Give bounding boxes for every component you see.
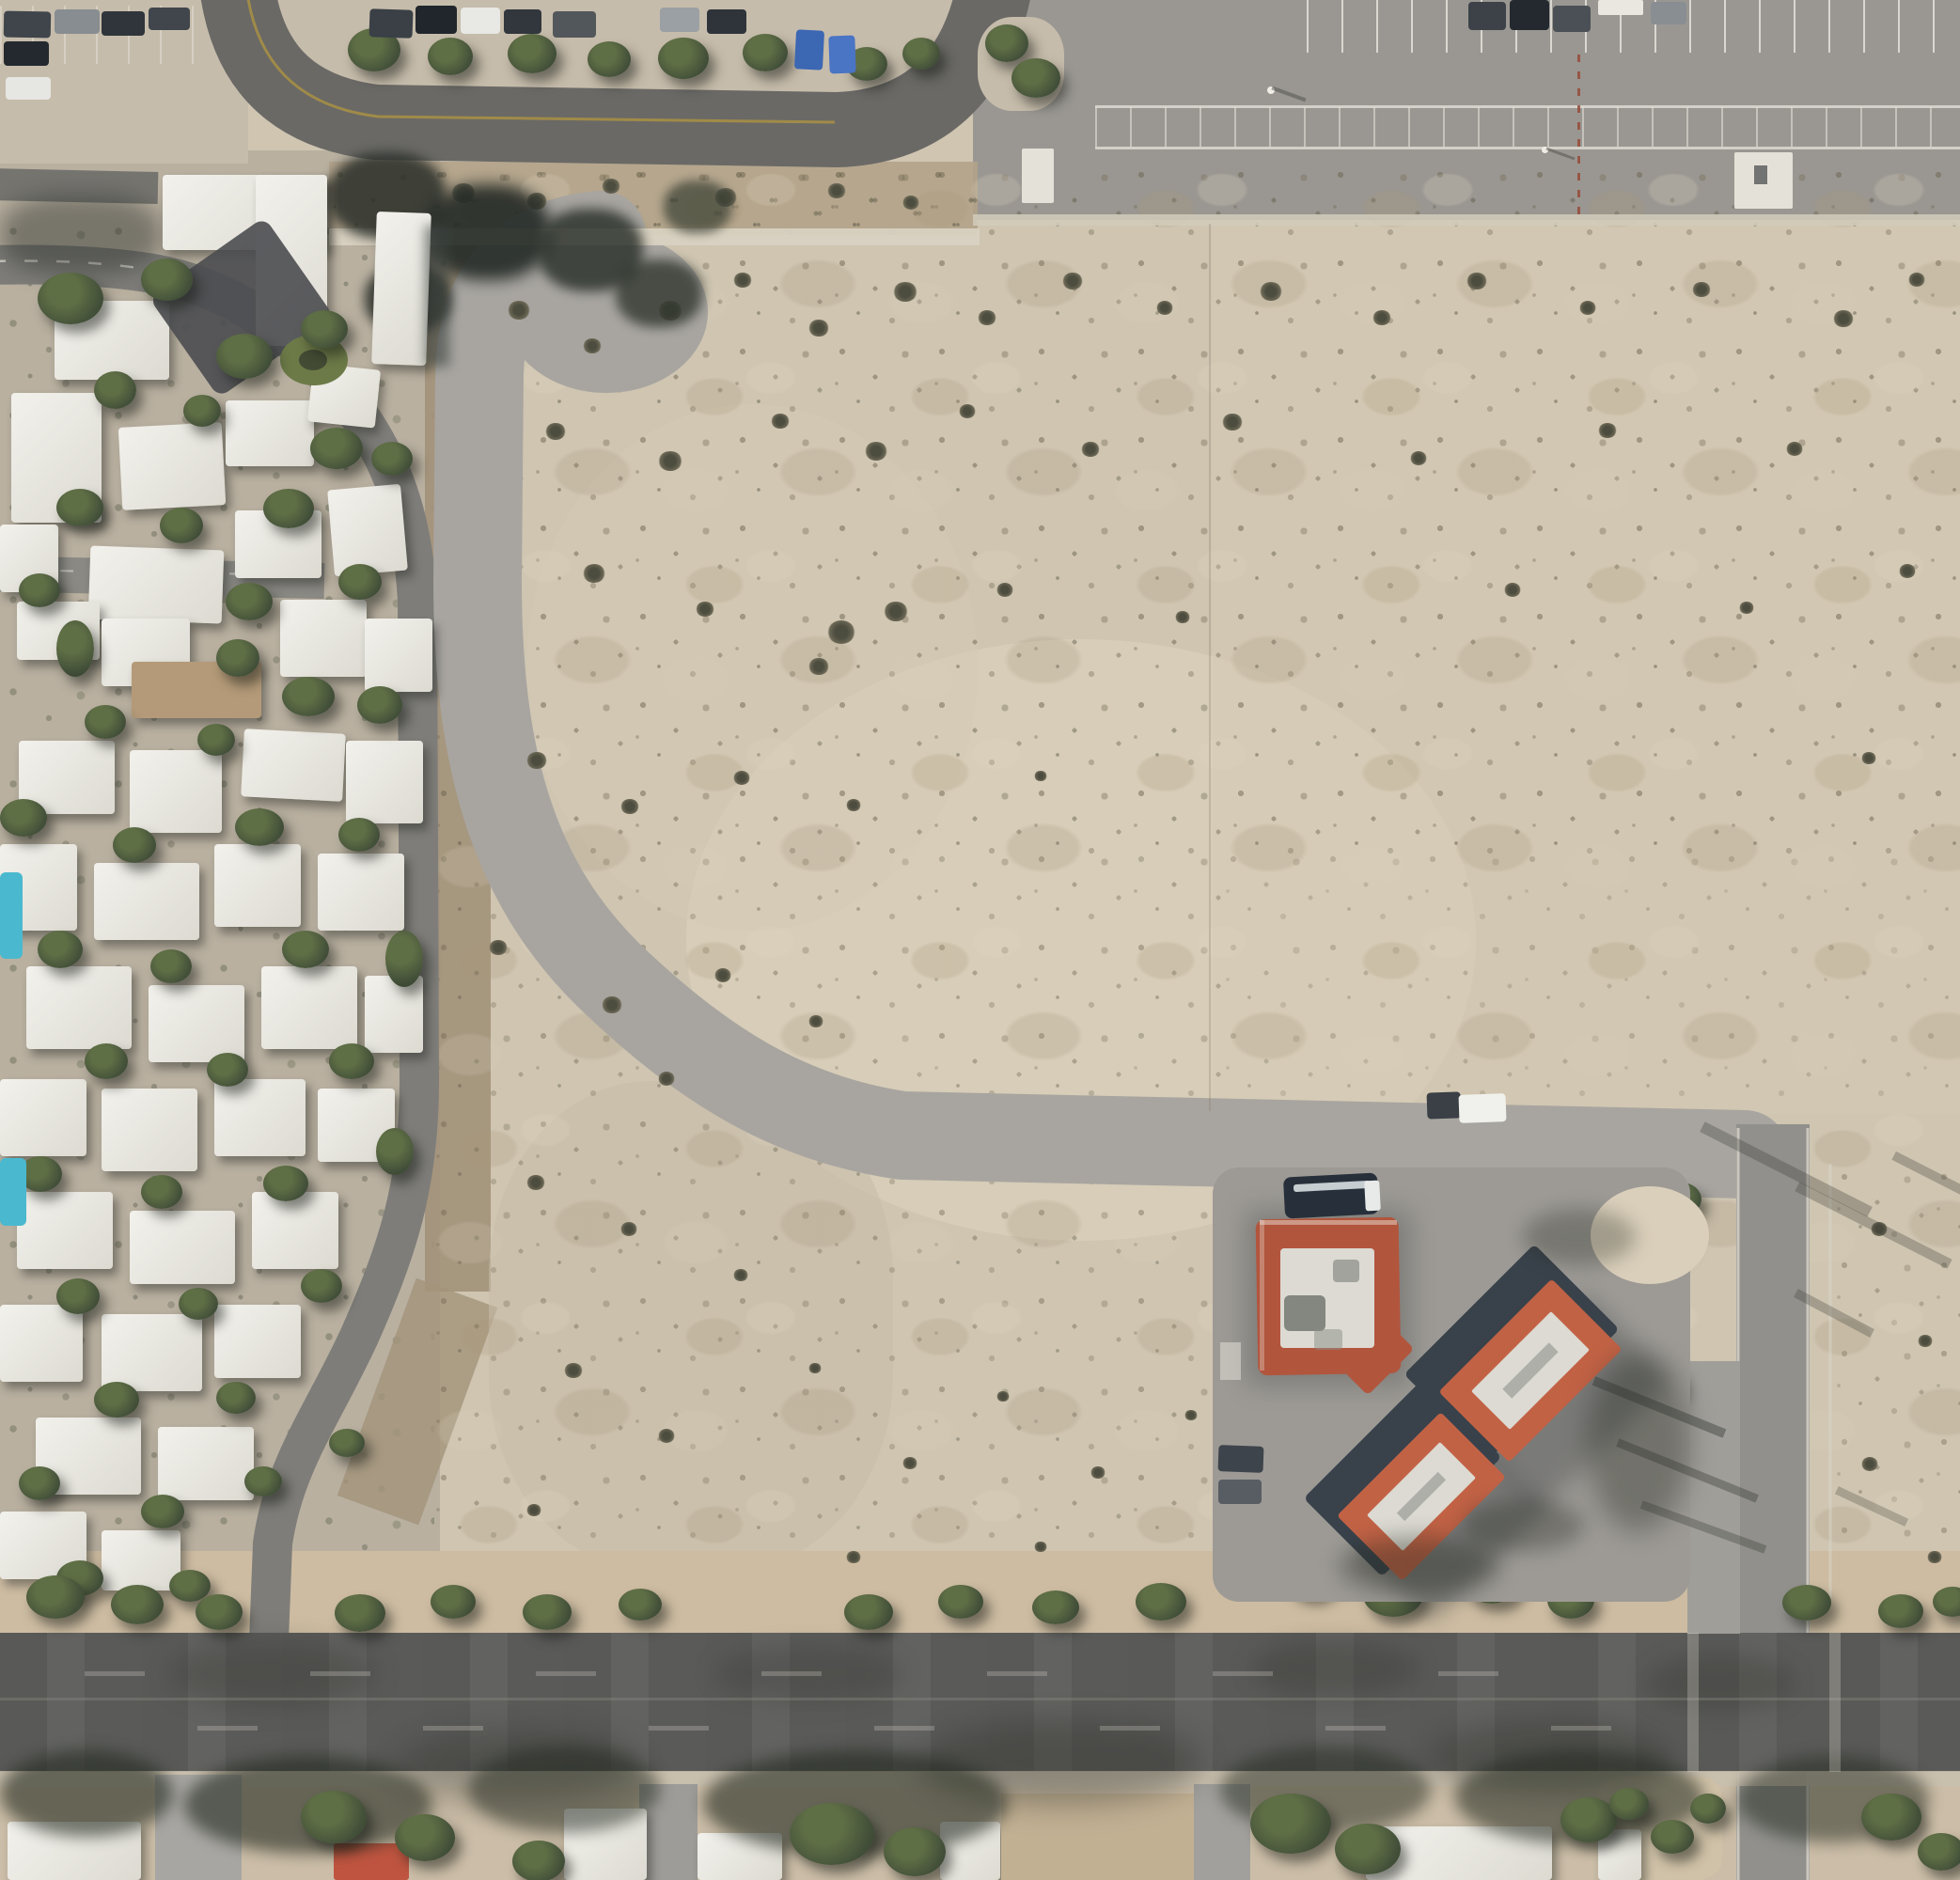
desert-bush: [808, 320, 829, 337]
dirt-yard: [1001, 1794, 1194, 1880]
tree: [428, 38, 473, 75]
residential-building: [252, 1192, 338, 1269]
vehicle: [828, 36, 855, 74]
vehicle: [461, 8, 500, 34]
tree: [141, 1175, 182, 1209]
desert-bush: [1034, 1542, 1047, 1552]
residential-building: [365, 976, 423, 1053]
residential-building: [241, 728, 346, 802]
desert-bush: [827, 183, 846, 198]
tree: [1782, 1585, 1831, 1621]
pole-shadow: [1794, 1289, 1874, 1338]
desert-bush: [1222, 414, 1243, 431]
desert-bush: [733, 273, 752, 288]
tree: [244, 1466, 282, 1496]
desert-bush: [602, 996, 622, 1013]
tree: [523, 1594, 572, 1630]
desert-bush: [696, 602, 714, 617]
desert-bush: [714, 968, 731, 982]
vehicle: [416, 6, 457, 34]
red-fence-line: [1577, 55, 1580, 222]
desert-bush: [1927, 1551, 1942, 1563]
roof-ridge-highlight: [1260, 1220, 1264, 1371]
vehicle: [1458, 1093, 1506, 1123]
tree-shadow-cluster: [616, 259, 702, 327]
parcel-boundary-line: [1209, 224, 1211, 1111]
residential-building: [130, 750, 222, 833]
tree: [508, 34, 557, 73]
desert-bush: [996, 583, 1013, 597]
desert-bush: [978, 310, 996, 325]
residential-building: [102, 1314, 202, 1391]
desert-bush: [959, 404, 976, 418]
residential-building: [17, 1192, 113, 1269]
tree: [938, 1585, 983, 1619]
tree-shadow-cluster: [664, 180, 731, 233]
tree: [985, 24, 1028, 62]
lane-dash: [85, 1671, 145, 1676]
desert-bush: [526, 752, 547, 769]
desert-bush: [1861, 1457, 1878, 1471]
light-pole-shadow: [1271, 86, 1306, 102]
building-east-shadow: [425, 226, 449, 367]
residential-building: [88, 546, 225, 624]
parking-south-sidewalk: [973, 214, 1960, 226]
tree: [196, 1594, 243, 1630]
desert-bush: [1692, 282, 1711, 297]
tree: [376, 1128, 414, 1175]
lane-dash: [987, 1671, 1047, 1676]
lane-dash: [874, 1726, 934, 1731]
desert-bush: [846, 799, 861, 811]
residential-building: [371, 211, 431, 366]
tree: [56, 489, 103, 526]
desert-bush: [771, 414, 790, 429]
desert-bush: [884, 602, 908, 621]
vehicle: [794, 29, 824, 70]
desert-bush: [808, 1363, 822, 1373]
utility-pad: [1022, 149, 1054, 203]
tree: [385, 931, 423, 987]
desert-bush: [1175, 611, 1190, 623]
residential-building: [118, 422, 226, 510]
tree: [111, 1585, 164, 1624]
lot-exit-shadow: [0, 196, 162, 274]
vehicle: [6, 77, 51, 100]
desert-bush: [658, 1429, 675, 1443]
desert-bush: [996, 1391, 1010, 1402]
satellite-map-canvas[interactable]: [0, 0, 1960, 1880]
tree: [902, 38, 940, 70]
tree: [301, 1269, 342, 1303]
residential-building: [365, 619, 432, 692]
desert-bush: [846, 1551, 861, 1563]
desert-bush: [545, 423, 566, 440]
swimming-pool: [0, 872, 23, 959]
tree: [619, 1589, 662, 1621]
desert-bush: [1739, 602, 1754, 614]
desert-bush: [733, 1269, 748, 1281]
tree: [338, 818, 380, 852]
desert-bush: [620, 1222, 637, 1236]
parking-stall-row-mid: [1095, 107, 1960, 147]
vehicle: [1427, 1091, 1462, 1119]
tree: [512, 1841, 565, 1880]
residential-building: [149, 985, 244, 1062]
parking-row-line-lower: [1095, 147, 1960, 149]
residential-building: [214, 844, 301, 927]
lane-dash: [1325, 1726, 1386, 1731]
crosswalk-band: [1829, 1633, 1841, 1772]
desert-bush: [489, 940, 508, 955]
features-layer: [0, 0, 1960, 1880]
boulevard-shadow: [1645, 1654, 1795, 1711]
residential-building: [26, 966, 132, 1049]
desert-bush: [865, 442, 887, 461]
desert-bush: [1833, 310, 1854, 327]
apron-tree-shadow: [1462, 1499, 1584, 1551]
lane-dash: [1213, 1671, 1273, 1676]
desert-bush: [733, 771, 750, 785]
tree: [588, 41, 631, 77]
tree: [1011, 58, 1060, 98]
desert-bush: [1504, 583, 1521, 597]
diagonal-shadow-streak: [1795, 1182, 1952, 1268]
tree: [263, 1166, 308, 1201]
planter-center-shadow: [299, 350, 327, 370]
vehicle: [1218, 1480, 1262, 1504]
tree: [1878, 1594, 1923, 1628]
desert-bush: [1034, 771, 1047, 781]
tree: [38, 273, 103, 324]
desert-bush: [1466, 273, 1487, 290]
vehicle: [1510, 0, 1549, 30]
vehicle: [4, 11, 51, 39]
gas-frontage-drive: [1687, 1361, 1740, 1634]
desert-bush: [1062, 273, 1083, 290]
vehicle: [504, 9, 541, 34]
desert-bush: [583, 338, 602, 353]
tree: [884, 1827, 946, 1876]
tree: [282, 677, 335, 716]
tree: [371, 442, 413, 476]
tree: [263, 489, 314, 528]
tree: [338, 564, 382, 600]
tree: [658, 38, 709, 79]
residential-building: [214, 1305, 301, 1378]
desert-bush: [902, 1457, 917, 1469]
desert-bush: [1156, 301, 1173, 315]
pavement-arrow-marking: [1220, 1342, 1241, 1380]
residential-building: [0, 1305, 83, 1382]
vehicle: [1598, 0, 1643, 15]
residential-building: [94, 863, 199, 940]
desert-bush: [658, 1072, 675, 1086]
desert-bush: [1908, 273, 1925, 287]
tree: [1250, 1794, 1331, 1854]
desert-bush: [893, 282, 917, 302]
courtyard-shadow-blotch: [1284, 1295, 1325, 1331]
lane-dash: [197, 1726, 258, 1731]
tree: [216, 1382, 256, 1414]
desert-bush: [1899, 564, 1916, 578]
tree: [179, 1288, 218, 1320]
tree: [301, 1791, 367, 1843]
tree: [329, 1043, 374, 1079]
vehicle: [102, 11, 145, 36]
desert-bush: [620, 799, 639, 814]
tree: [26, 1575, 85, 1619]
tree: [310, 428, 363, 469]
tree: [395, 1814, 455, 1861]
diagonal-shadow-streak: [1891, 1151, 1960, 1212]
desert-bush: [1861, 752, 1876, 764]
roof-ridge-highlight: [1260, 1220, 1397, 1225]
tree: [197, 724, 235, 756]
desert-bush: [902, 196, 919, 210]
residential-building: [280, 600, 367, 677]
tree: [56, 620, 94, 677]
lane-dash: [649, 1726, 709, 1731]
desert-bush: [1260, 282, 1282, 301]
lane-dash: [310, 1671, 370, 1676]
diagonal-shadow-streak: [1700, 1121, 1873, 1216]
tree: [183, 395, 221, 427]
desert-bush: [1918, 1335, 1933, 1347]
residential-building: [102, 1089, 197, 1171]
vehicle: [1553, 6, 1591, 32]
tree: [85, 1043, 128, 1079]
tree: [0, 799, 47, 837]
vehicle: [149, 8, 190, 30]
apron-tree-shadow: [1523, 1209, 1636, 1265]
desert-bush: [508, 301, 530, 320]
residential-building: [346, 741, 423, 823]
tree: [1136, 1583, 1186, 1621]
median-line: [0, 1698, 1960, 1700]
vehicle: [660, 8, 699, 32]
tree: [1032, 1590, 1079, 1624]
pole-shadow: [1835, 1486, 1908, 1527]
desert-bush: [808, 1015, 823, 1027]
vehicle: [1218, 1445, 1264, 1473]
tree: [216, 639, 259, 677]
tree: [1651, 1820, 1694, 1854]
vehicle: [4, 41, 49, 66]
tree: [1335, 1824, 1401, 1874]
lane-dash: [536, 1671, 596, 1676]
tree: [141, 258, 193, 301]
tree: [431, 1585, 476, 1619]
desert-bush: [1081, 442, 1100, 457]
desert-bush: [1598, 423, 1617, 438]
tree: [1609, 1788, 1649, 1820]
residential-building: [158, 1427, 254, 1500]
lane-dash: [423, 1726, 483, 1731]
desert-bush: [1579, 301, 1596, 315]
vehicle: [1364, 1181, 1381, 1212]
residential-building: [261, 966, 357, 1049]
desert-bush: [564, 1363, 583, 1378]
tree: [113, 827, 156, 863]
tree: [790, 1803, 874, 1865]
desert-bush: [583, 564, 605, 583]
vehicle: [707, 9, 746, 34]
vehicle: [553, 11, 596, 38]
tree: [141, 1495, 184, 1528]
lane-dash: [1551, 1726, 1611, 1731]
residential-building: [0, 1079, 86, 1156]
lane-dash: [1100, 1726, 1160, 1731]
courtyard-shadow-blotch: [1314, 1329, 1342, 1350]
lane-dash: [761, 1671, 822, 1676]
tree: [1560, 1797, 1617, 1842]
tree: [160, 508, 203, 543]
tree: [282, 931, 329, 968]
desert-bush: [827, 620, 855, 644]
vehicle: [1468, 2, 1506, 30]
vehicle: [368, 8, 413, 39]
tree-canopy-row: [468, 1747, 660, 1833]
apron-tree-shadow: [1340, 1537, 1499, 1595]
desert-bush: [602, 179, 620, 194]
desert-bush: [658, 451, 682, 471]
residential-building: [226, 400, 314, 466]
tree: [1861, 1794, 1921, 1841]
tree: [94, 371, 136, 409]
desert-bush: [526, 1504, 541, 1516]
tree: [207, 1053, 248, 1087]
tree: [85, 705, 126, 739]
tree: [19, 573, 60, 607]
tree: [335, 1594, 385, 1632]
residential-building: [214, 1079, 306, 1156]
tree: [56, 1278, 100, 1314]
tree: [150, 949, 192, 983]
desert-bush: [808, 658, 829, 675]
tree: [94, 1382, 139, 1418]
desert-bush: [526, 1175, 545, 1190]
residential-building: [327, 484, 408, 576]
tree: [235, 808, 284, 846]
desert-bush: [1372, 310, 1391, 325]
tree: [1933, 1587, 1960, 1617]
utility-pad-door: [1754, 165, 1767, 184]
tree: [301, 310, 348, 348]
tree: [226, 583, 273, 620]
desert-bush: [1184, 1410, 1198, 1420]
tree: [38, 931, 83, 968]
tree: [216, 334, 273, 379]
tree: [329, 1429, 365, 1457]
tree-canopy-row: [0, 1750, 173, 1837]
vehicle: [1651, 2, 1686, 24]
swimming-pool: [0, 1158, 26, 1226]
residential-building: [102, 1530, 180, 1590]
tree: [357, 686, 402, 724]
courtyard-shadow-blotch: [1333, 1260, 1359, 1282]
crosswalk-band: [1687, 1633, 1699, 1772]
tree: [844, 1594, 893, 1630]
residential-building: [318, 854, 404, 931]
tree: [1918, 1833, 1960, 1871]
tree: [19, 1466, 60, 1500]
tree: [1690, 1794, 1726, 1824]
desert-bush: [1786, 442, 1803, 456]
tree: [743, 34, 788, 71]
vehicle: [55, 9, 100, 34]
boulevard-shadow: [1250, 1640, 1419, 1697]
desert-bush: [1410, 451, 1427, 465]
residential-building: [130, 1211, 235, 1284]
lane-dash: [1438, 1671, 1498, 1676]
desert-bush: [1090, 1466, 1105, 1479]
